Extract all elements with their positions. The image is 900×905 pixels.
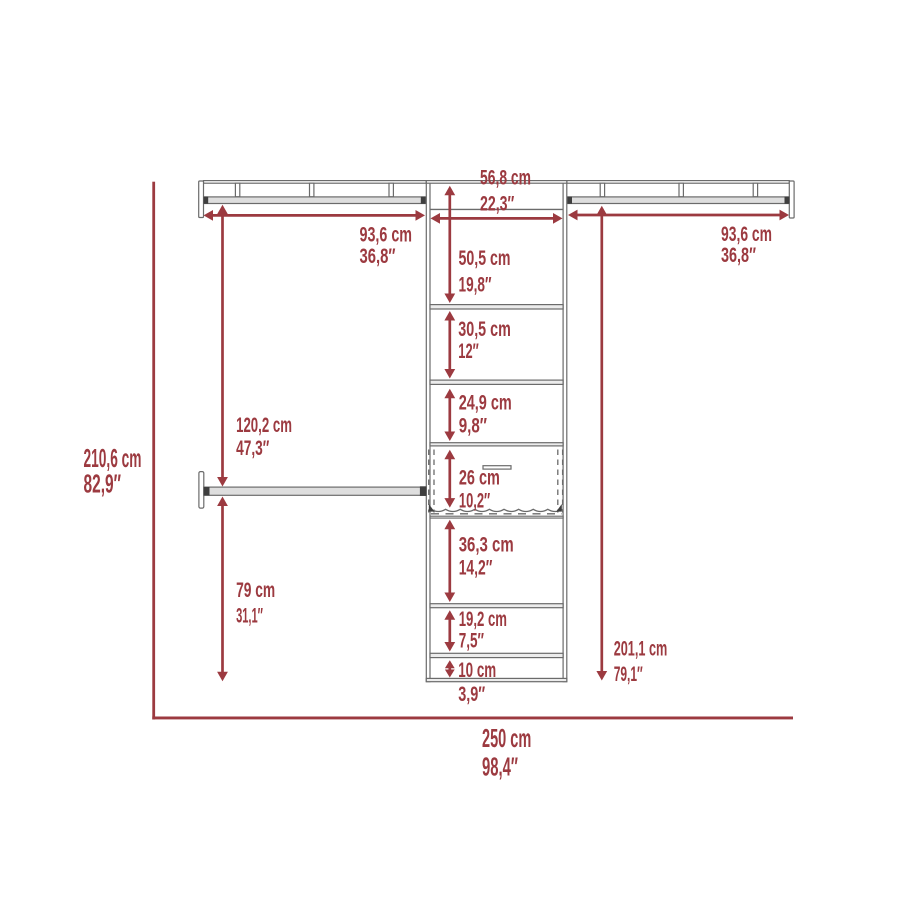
svg-text:82,9″: 82,9″ [84,468,122,498]
svg-text:14,2″: 14,2″ [459,557,493,580]
svg-text:50,5 cm: 50,5 cm [459,247,511,270]
svg-text:98,4″: 98,4″ [482,751,518,781]
svg-text:19,8″: 19,8″ [459,274,492,297]
svg-text:10 cm: 10 cm [458,659,496,682]
svg-text:79,1″: 79,1″ [614,663,643,686]
svg-text:31,1″: 31,1″ [236,604,263,627]
svg-text:36,3 cm: 36,3 cm [459,533,514,556]
svg-text:26 cm: 26 cm [459,467,500,490]
svg-text:56,8 cm: 56,8 cm [480,166,531,189]
svg-text:250 cm: 250 cm [482,723,531,753]
svg-text:93,6 cm: 93,6 cm [360,224,413,247]
svg-text:22,3″: 22,3″ [480,192,514,215]
svg-text:201,1 cm: 201,1 cm [614,637,668,660]
svg-text:9,8″: 9,8″ [459,414,487,437]
svg-text:12″: 12″ [458,340,479,363]
svg-text:93,6 cm: 93,6 cm [721,223,772,246]
svg-text:36,8″: 36,8″ [360,245,396,268]
svg-text:30,5 cm: 30,5 cm [458,318,511,341]
svg-text:47,3″: 47,3″ [236,437,269,460]
svg-text:10,2″: 10,2″ [459,490,490,513]
svg-text:7,5″: 7,5″ [459,630,484,653]
svg-text:24,9 cm: 24,9 cm [459,391,512,414]
svg-text:79 cm: 79 cm [236,579,275,602]
svg-text:19,2 cm: 19,2 cm [459,608,507,631]
svg-text:120,2 cm: 120,2 cm [236,414,292,437]
svg-text:36,8″: 36,8″ [721,244,756,267]
svg-text:3,9″: 3,9″ [458,683,485,706]
